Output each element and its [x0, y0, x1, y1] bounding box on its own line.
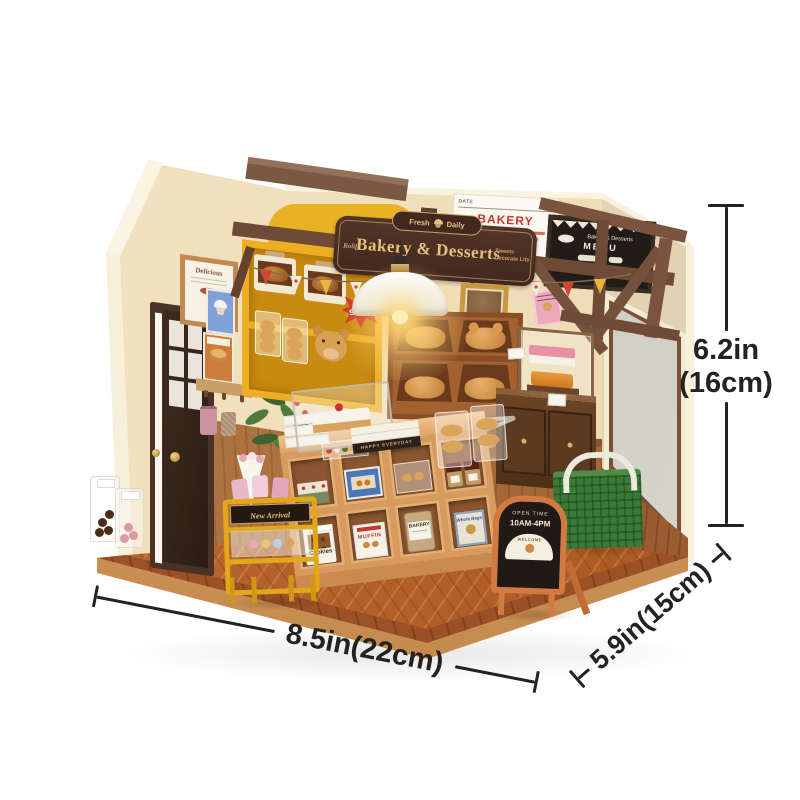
dimension-line — [577, 668, 590, 679]
bread-bag — [282, 317, 308, 364]
badge-fresh: Fresh — [409, 217, 430, 227]
badge-daily: Daily — [446, 219, 465, 229]
dimension-cap — [708, 524, 744, 527]
paper-date-label: DATE — [458, 199, 473, 206]
door-knob-icon — [170, 452, 180, 462]
cubby-muffin: MUFFIN — [344, 506, 395, 564]
door-window-panes — [169, 320, 202, 411]
bear-icon — [465, 524, 476, 535]
tin-label: Whole Bags — [456, 515, 482, 523]
bread-bag — [255, 310, 281, 357]
cart-macaron-tray — [231, 529, 312, 558]
lamp-bulb-icon — [392, 310, 408, 324]
sign-tagline-2: Decorate Life — [494, 255, 530, 264]
bear-toast — [466, 327, 506, 350]
cubby-tin: Whole Bags — [444, 494, 495, 552]
knob-icon — [568, 442, 573, 447]
door-opening-light — [155, 313, 162, 564]
muffin-box: MUFFIN — [352, 522, 388, 560]
hanging-bag-woven — [221, 412, 236, 436]
dimension-line — [455, 665, 536, 683]
candy-pouch — [252, 475, 269, 498]
bread-icon — [210, 348, 227, 362]
new-arrival-sign: New Arrival — [230, 503, 311, 525]
open-hours: 10AM-4PM — [499, 518, 561, 529]
hook-icon — [204, 390, 208, 398]
hanging-bag-pink — [200, 406, 217, 435]
clear-pastry-box — [394, 460, 433, 494]
new-arrival-cart: New Arrival — [222, 476, 320, 603]
open-time-standing-sign: OPEN TIME 10AM-4PM WELCOME — [490, 495, 574, 618]
bear-icon — [525, 544, 534, 553]
dimension-line — [725, 402, 728, 524]
product-photo-miniature-bakery: Delicious — [0, 0, 800, 800]
cupcake-icon — [214, 299, 227, 309]
open-sign-board: OPEN TIME 10AM-4PM WELCOME — [491, 495, 568, 596]
open-time-label: OPEN TIME — [499, 510, 561, 518]
candy-bag — [115, 488, 144, 548]
welcome-label: WELCOME — [506, 533, 554, 543]
knob-icon — [522, 438, 527, 443]
height-value-in: 6.2in — [660, 334, 792, 367]
bread-poster — [203, 332, 234, 384]
hook-icon — [222, 393, 226, 401]
dimension-cap — [533, 671, 540, 693]
new-arrival-label: New Arrival — [250, 510, 290, 520]
welcome-banner: WELCOME — [505, 533, 554, 561]
blue-cookie-box — [343, 466, 382, 500]
cupcake-icon — [433, 218, 443, 228]
dimension-line — [725, 207, 728, 331]
door — [163, 310, 208, 568]
counter-bread-bags — [434, 403, 514, 468]
height-value-cm: (16cm) — [660, 367, 792, 400]
dimension-line — [711, 552, 724, 563]
glass-cake-case — [518, 327, 594, 400]
door-knob-icon — [152, 449, 160, 457]
height-dimension: 6.2in (16cm) — [660, 200, 792, 532]
bakery-jar: BAKERY — [404, 510, 437, 553]
price-card — [508, 347, 526, 359]
price-card — [548, 394, 567, 407]
whole-bags-tin: Whole Bags — [453, 510, 487, 547]
bakery-jar-label: BAKERY — [408, 521, 430, 530]
basket-shadow — [560, 544, 645, 557]
cubby-bakery-jar: BAKERY — [394, 500, 445, 558]
